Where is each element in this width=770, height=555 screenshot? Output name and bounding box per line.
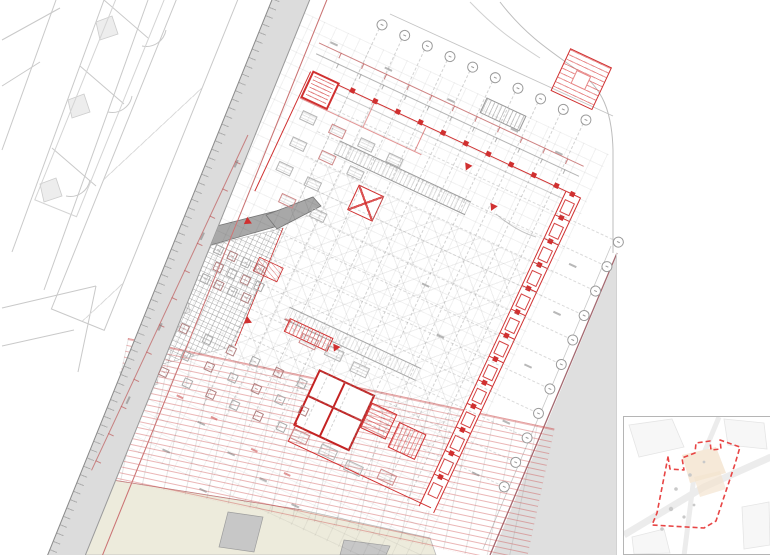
column-point xyxy=(459,426,466,433)
window-mullion xyxy=(537,246,553,263)
window-mullion xyxy=(482,364,498,381)
column-point xyxy=(569,191,576,198)
window-mullion xyxy=(504,317,520,334)
window-mullion xyxy=(471,388,487,405)
stair-treads xyxy=(305,76,334,105)
window-mullion xyxy=(493,340,509,357)
window-mullion xyxy=(526,270,542,287)
window-mullion xyxy=(515,293,531,310)
key-plan-inset xyxy=(623,416,770,555)
column-point xyxy=(448,450,455,457)
column-point xyxy=(437,474,444,481)
site-plan-canvas xyxy=(0,0,770,555)
ramp-landing xyxy=(570,70,591,90)
column-point xyxy=(481,379,488,386)
window-mullion xyxy=(559,199,575,216)
key-plan-map xyxy=(624,417,770,554)
window-mullion xyxy=(427,482,443,499)
column-point xyxy=(470,403,477,410)
key-plan-site-patches xyxy=(682,447,726,497)
window-mullion xyxy=(548,223,564,240)
